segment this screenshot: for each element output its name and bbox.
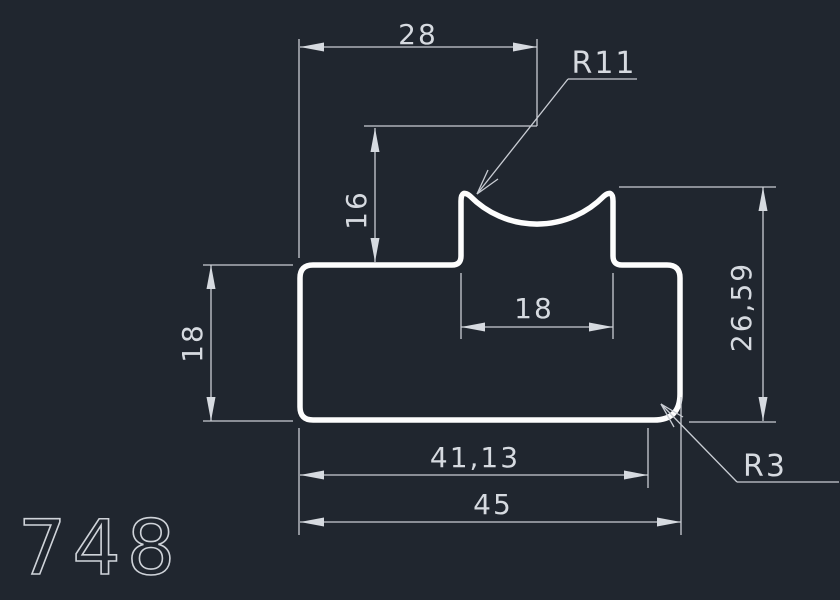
arrowhead-right (624, 471, 648, 480)
arrowhead-bottom (207, 397, 216, 421)
leader-groove-radius: R11 (477, 46, 637, 194)
dimension-right-height: 26,59 (619, 187, 776, 422)
dimension-left-height: 18 (176, 265, 293, 421)
arrowhead-top (207, 265, 216, 289)
arrowhead-left (461, 323, 485, 332)
dimension-groove-center-height: 16 (340, 126, 537, 262)
arrowhead-bottom (759, 397, 768, 421)
dimension-top-width: 28 (299, 18, 537, 258)
cad-drawing: 28 16 18 26,59 18 (0, 0, 840, 600)
part-number: 748 (18, 503, 181, 592)
dimension-boss-width: 18 (461, 273, 613, 339)
arrowhead-right (589, 323, 613, 332)
leader-line (477, 79, 568, 194)
dimension-value: 41,13 (430, 441, 520, 474)
dimension-value: 26,59 (725, 262, 758, 352)
arrowhead-right (513, 43, 537, 52)
arrowhead-left (300, 43, 324, 52)
arrowhead-left (300, 471, 324, 480)
arrowhead-top (371, 128, 380, 152)
leader-line (661, 404, 737, 482)
arrowhead-bottom (371, 238, 380, 262)
arrowhead-top (759, 187, 768, 211)
arrowhead-right (657, 518, 681, 527)
dimension-value: 18 (514, 292, 554, 325)
cad-drawing-canvas: 28 16 18 26,59 18 (0, 0, 840, 600)
arrowhead-left (300, 518, 324, 527)
dimension-value: 45 (473, 488, 513, 521)
leader-corner-radius: R3 (661, 404, 839, 484)
radius-label: R3 (743, 449, 787, 484)
dimension-value: 28 (398, 18, 438, 51)
dimension-value: 16 (340, 190, 373, 230)
dimension-value: 18 (176, 323, 209, 363)
radius-label: R11 (571, 46, 636, 81)
